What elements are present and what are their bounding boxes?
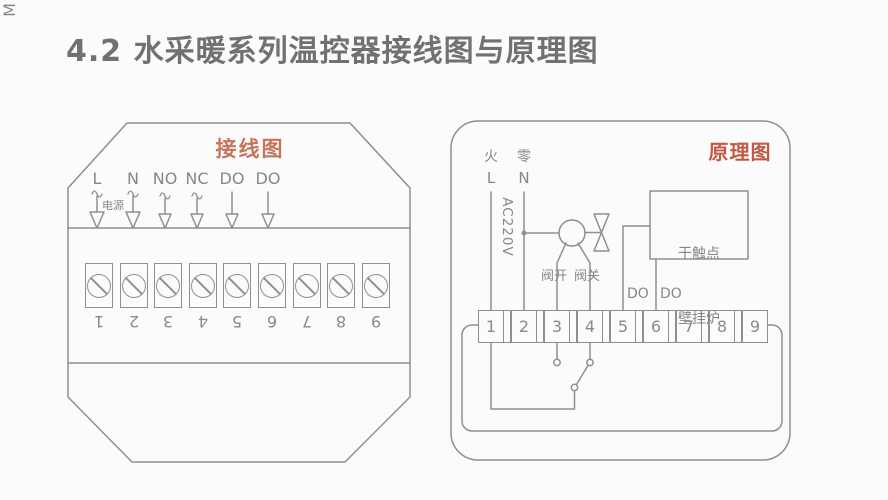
- screw-head-icon: [295, 274, 319, 298]
- terminal-number-8: 8: [327, 312, 355, 331]
- arrow-NO: [159, 193, 171, 228]
- screw-slot-icon: [194, 276, 212, 294]
- terminal-label-L: L: [79, 169, 115, 188]
- screw-head-icon: [156, 274, 180, 298]
- terminal-divider: [503, 310, 511, 343]
- live-letter: L: [483, 169, 499, 187]
- switch-pivot: [571, 384, 577, 390]
- terminal-number-2: 2: [120, 312, 148, 331]
- screw-head-icon: [191, 274, 215, 298]
- terminal-number-3: 3: [154, 312, 182, 331]
- screw-slot-icon: [298, 276, 316, 294]
- schematic-terminal-1: 1: [478, 310, 504, 343]
- terminal-number-6: 6: [258, 312, 286, 331]
- terminal-label-N: N: [115, 169, 151, 188]
- live-cn-label: 火: [483, 146, 499, 166]
- wiring-diagram-label: 接线图: [205, 133, 295, 163]
- switch-contact-4: [587, 359, 593, 365]
- terminal-label-DO2: DO: [250, 169, 286, 188]
- boiler-box-line2: 壁挂炉: [650, 309, 748, 331]
- page-title: 4.2 水采暖系列温控器接线图与原理图: [66, 26, 599, 70]
- screw-terminal-4: [189, 263, 217, 308]
- voltage-label: AC220V: [499, 197, 515, 257]
- arrow-DO-2: [262, 192, 274, 228]
- schematic-terminal-4: 4: [577, 310, 603, 343]
- power-label: 电源: [102, 197, 124, 213]
- terminal-label-NO: NO: [147, 169, 183, 188]
- switch-common-wire: [491, 344, 575, 410]
- manual-page: 4.2 水采暖系列温控器接线图与原理图 接线图 L N NO NC DO DO …: [0, 0, 888, 500]
- screw-head-icon: [122, 274, 146, 298]
- screw-terminal-6: [258, 263, 286, 308]
- switch-blade: [577, 366, 589, 385]
- arrow-NC: [191, 193, 203, 228]
- schematic-label: 原理图: [703, 136, 777, 165]
- valve-symbol-bottom: [594, 233, 609, 252]
- screw-head-icon: [260, 274, 284, 298]
- boiler-box-label: 干触点 壁挂炉: [650, 201, 748, 375]
- terminal-number-4: 4: [189, 312, 217, 331]
- switch-contact-3: [554, 359, 560, 365]
- terminal-number-1: 1: [85, 312, 113, 331]
- terminal-divider: [602, 310, 610, 343]
- motor-symbol: [559, 220, 585, 246]
- screw-terminal-3: [154, 263, 182, 308]
- screw-slot-icon: [90, 276, 108, 294]
- schematic-terminal-3: 3: [544, 310, 570, 343]
- schematic-terminal-5: 5: [610, 310, 636, 343]
- terminal-label-DO1: DO: [214, 169, 250, 188]
- screw-terminal-8: [327, 263, 355, 308]
- diagram-lineart: [0, 0, 888, 500]
- screw-terminal-1: [85, 263, 113, 308]
- screw-terminal-9: [362, 263, 390, 308]
- screw-terminal-2: [120, 263, 148, 308]
- screw-head-icon: [225, 274, 249, 298]
- terminal-label-NC: NC: [179, 169, 215, 188]
- screw-slot-icon: [332, 276, 350, 294]
- screw-slot-icon: [367, 276, 385, 294]
- screw-slot-icon: [125, 276, 143, 294]
- screw-slot-icon: [159, 276, 177, 294]
- valve-open-label: 阀开: [541, 270, 557, 285]
- terminal-divider: [635, 310, 643, 343]
- screw-head-icon: [329, 274, 353, 298]
- boiler-box-line1: 干触点: [650, 244, 748, 266]
- terminal-divider: [569, 310, 577, 343]
- neutral-cn-label: 零: [516, 146, 532, 166]
- do-label-1: DO: [627, 286, 649, 302]
- valve-symbol-top: [594, 214, 609, 233]
- terminal-number-7: 7: [293, 312, 321, 331]
- schematic-terminal-2: 2: [511, 310, 537, 343]
- screw-terminal-5: [223, 263, 251, 308]
- screw-terminal-7: [293, 263, 321, 308]
- terminal-number-5: 5: [223, 312, 251, 331]
- screw-slot-icon: [228, 276, 246, 294]
- valve-close-label: 阀关: [574, 270, 590, 285]
- terminal-number-9: 9: [362, 312, 390, 331]
- screw-slot-icon: [263, 276, 281, 294]
- screw-head-icon: [87, 274, 111, 298]
- neutral-letter: N: [516, 169, 532, 187]
- screw-head-icon: [364, 274, 388, 298]
- arrow-N: [126, 191, 140, 228]
- terminal-divider: [536, 310, 544, 343]
- arrow-DO-1: [226, 192, 238, 228]
